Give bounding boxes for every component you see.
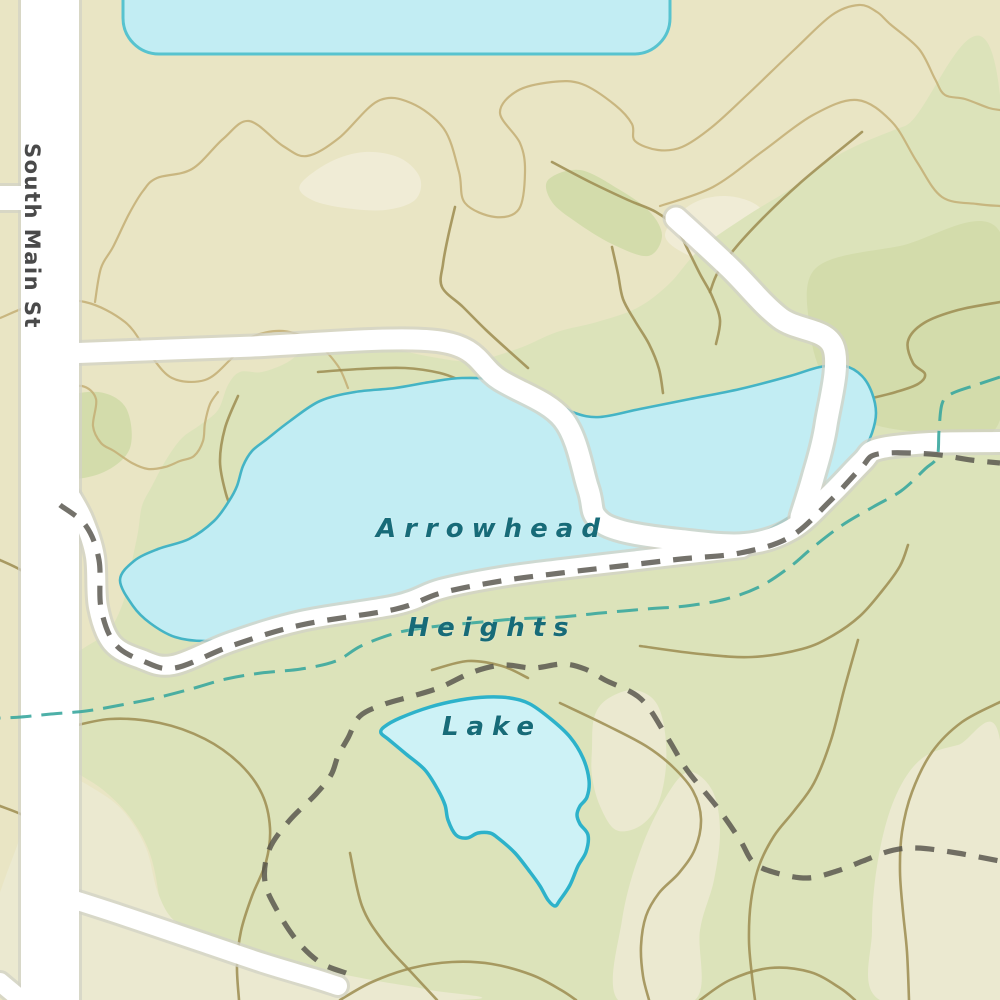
map-canvas[interactable]: South Main St Arrowhead Heights Lake [0, 0, 1000, 1000]
north-lake [123, 0, 670, 54]
topographic-map [0, 0, 1000, 1000]
